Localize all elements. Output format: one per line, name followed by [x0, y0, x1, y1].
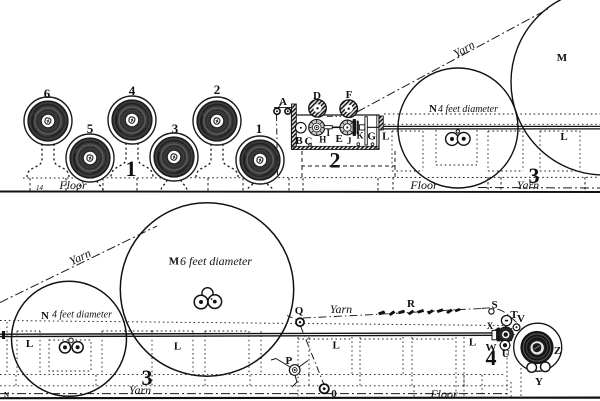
svg-text:L: L [174, 341, 181, 353]
svg-text:L: L [26, 338, 33, 350]
svg-text:V: V [517, 313, 525, 325]
svg-text:4: 4 [129, 83, 136, 98]
svg-text:1: 1 [126, 156, 137, 181]
svg-text:3: 3 [172, 121, 179, 136]
svg-text:Z: Z [554, 345, 561, 357]
svg-text:E: E [336, 133, 343, 145]
svg-text:L: L [560, 131, 567, 143]
svg-text:U: U [502, 348, 510, 360]
svg-text:R: R [407, 298, 416, 310]
svg-text:F: F [346, 89, 353, 101]
svg-text:L: L [333, 340, 340, 352]
svg-text:0: 0 [331, 388, 337, 400]
svg-text:I: I [327, 128, 331, 138]
svg-text:L: L [469, 337, 476, 349]
svg-text:2: 2 [214, 82, 221, 97]
svg-text:M: M [169, 256, 180, 268]
svg-text:4 feet diameter: 4 feet diameter [52, 310, 112, 321]
svg-text:D: D [313, 90, 321, 102]
svg-text:Yarn: Yarn [330, 302, 352, 316]
svg-text:6 feet diameter: 6 feet diameter [180, 254, 252, 268]
svg-text:14: 14 [36, 184, 44, 192]
svg-text:B: B [295, 135, 303, 147]
svg-text:Floor: Floor [409, 178, 438, 192]
svg-text:N: N [41, 310, 49, 322]
svg-text:Y: Y [535, 376, 543, 388]
svg-text:4 feet diameter: 4 feet diameter [438, 104, 498, 115]
svg-text:H: H [319, 135, 326, 145]
svg-text:3: 3 [142, 365, 153, 390]
svg-text:J: J [347, 136, 352, 146]
svg-text:2: 2 [330, 148, 341, 173]
svg-text:5: 5 [87, 121, 94, 136]
svg-text:S: S [491, 299, 497, 311]
svg-text:A: A [279, 96, 287, 108]
svg-text:C: C [305, 136, 313, 148]
svg-text:3: 3 [529, 163, 540, 188]
svg-text:P: P [286, 355, 293, 367]
svg-text:K: K [356, 131, 363, 141]
svg-text:6: 6 [44, 86, 51, 101]
svg-text:L: L [382, 131, 389, 143]
svg-text:Floor: Floor [429, 387, 458, 401]
svg-text:1: 1 [256, 121, 263, 136]
svg-text:G: G [367, 131, 376, 143]
svg-text:X: X [487, 321, 494, 331]
svg-text:M: M [557, 52, 568, 64]
svg-text:4: 4 [486, 345, 497, 370]
svg-text:Q: Q [295, 305, 304, 317]
svg-text:N: N [4, 391, 9, 399]
svg-text:N: N [429, 103, 437, 115]
